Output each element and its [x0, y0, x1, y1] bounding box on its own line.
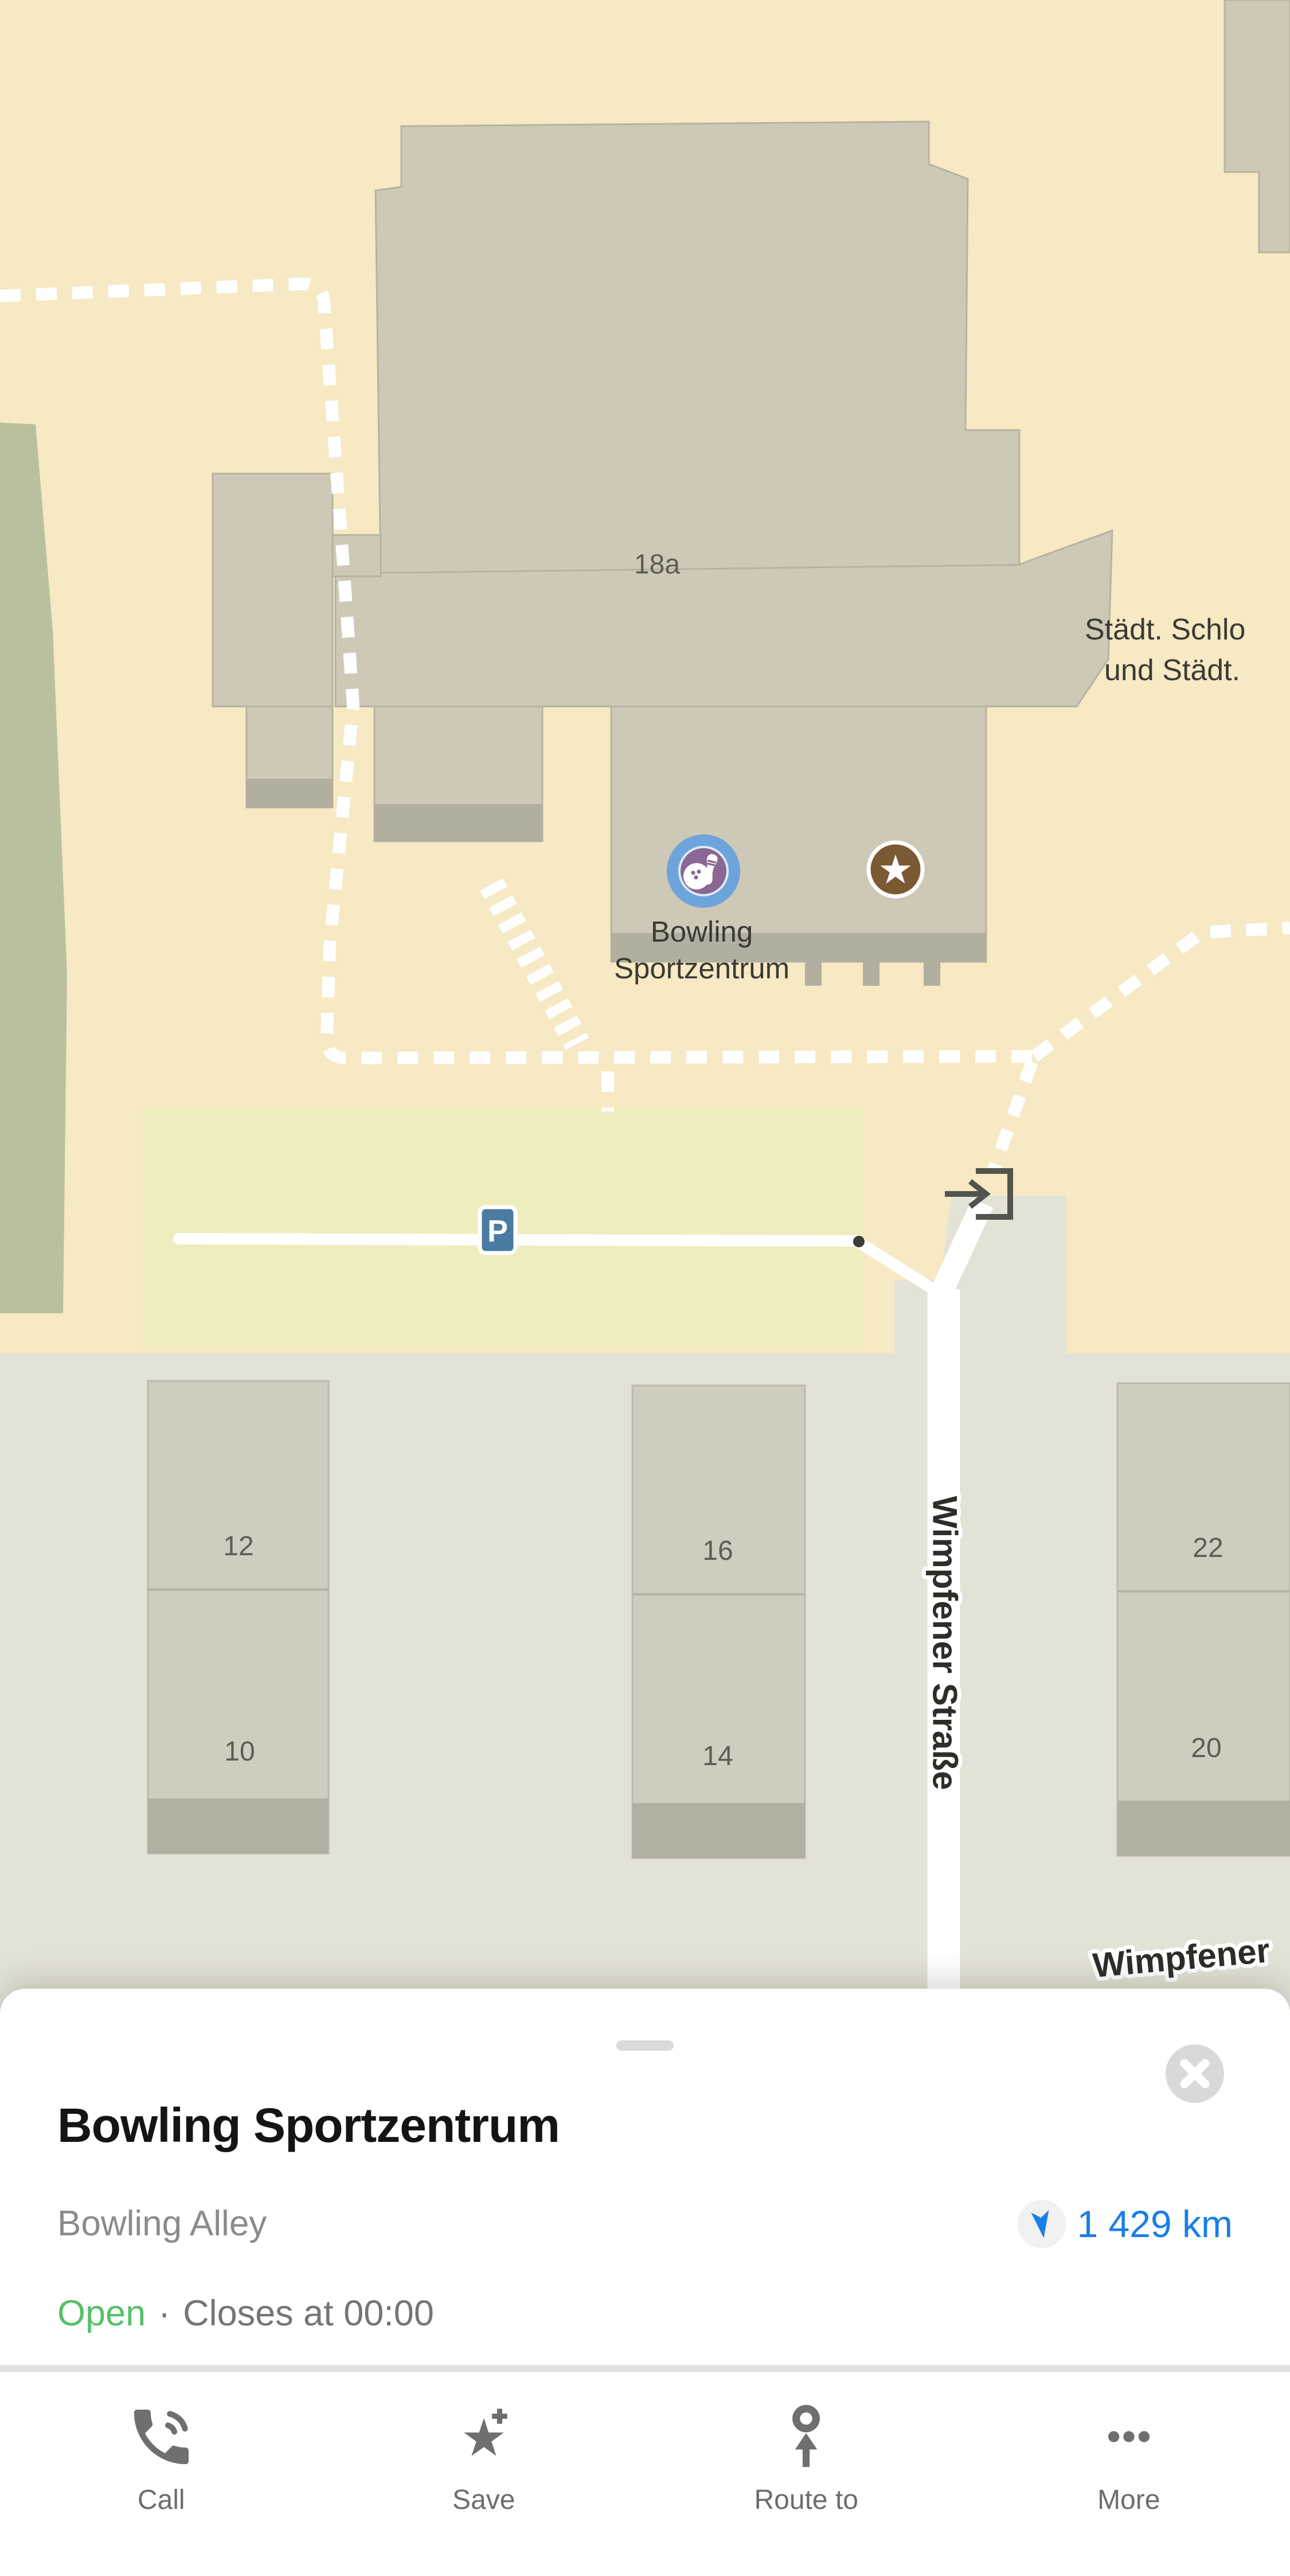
direction-arrow-icon [1015, 2198, 1068, 2250]
area-label-line1: Städt. Schlo [1085, 613, 1245, 646]
closing-time: Closes at 00:00 [183, 2293, 434, 2333]
close-icon [1165, 2044, 1225, 2103]
close-button[interactable] [1165, 2044, 1225, 2103]
separator-dot: · [158, 2293, 170, 2333]
poi-label-line2: Sportzentrum [614, 952, 789, 985]
house-number: 14 [702, 1741, 733, 1771]
road-end-dot [853, 1236, 865, 1247]
house-number: 12 [223, 1531, 253, 1562]
building-number-label: 18a [634, 549, 680, 580]
street-label-vertical: Wimpfener Straße [926, 1496, 964, 1790]
star-poi-icon[interactable] [869, 842, 922, 896]
phone-icon [126, 2402, 196, 2472]
parking-sign[interactable]: P [480, 1207, 515, 1253]
house-row [148, 1381, 1290, 1858]
house-number: 22 [1193, 1533, 1223, 1563]
drag-handle[interactable] [616, 2040, 674, 2051]
house-number: 10 [224, 1736, 255, 1767]
save-star-icon [449, 2402, 519, 2472]
action-label: Save [452, 2484, 515, 2516]
house-number: 20 [1191, 1733, 1221, 1763]
call-button[interactable]: Call [0, 2372, 323, 2576]
house-number: 16 [702, 1536, 733, 1566]
poi-label-line1: Bowling [651, 915, 753, 948]
parking-sign-letter: P [487, 1214, 508, 1248]
action-bar-divider [0, 2365, 1290, 2372]
action-label: Call [138, 2484, 185, 2516]
distance-badge: 1 429 km [1015, 2198, 1233, 2250]
route-to-button[interactable]: Route to [645, 2372, 968, 2576]
open-status: Open [57, 2293, 146, 2333]
bowling-poi-icon[interactable] [667, 834, 740, 908]
opening-hours: Open·Closes at 00:00 [57, 2293, 434, 2334]
action-label: Route to [755, 2484, 858, 2516]
action-bar: Call Save Route to More [0, 2372, 1290, 2576]
route-to-icon [771, 2402, 841, 2472]
distance-value: 1 429 km [1077, 2202, 1233, 2246]
place-title: Bowling Sportzentrum [57, 2098, 560, 2153]
more-dots-icon [1094, 2402, 1164, 2472]
more-button[interactable]: More [968, 2372, 1290, 2576]
house-facades [148, 1798, 1290, 1858]
area-label-line2: und Städt. [1104, 654, 1240, 687]
save-button[interactable]: Save [323, 2372, 646, 2576]
action-label: More [1097, 2484, 1160, 2516]
place-category: Bowling Alley [57, 2203, 267, 2244]
